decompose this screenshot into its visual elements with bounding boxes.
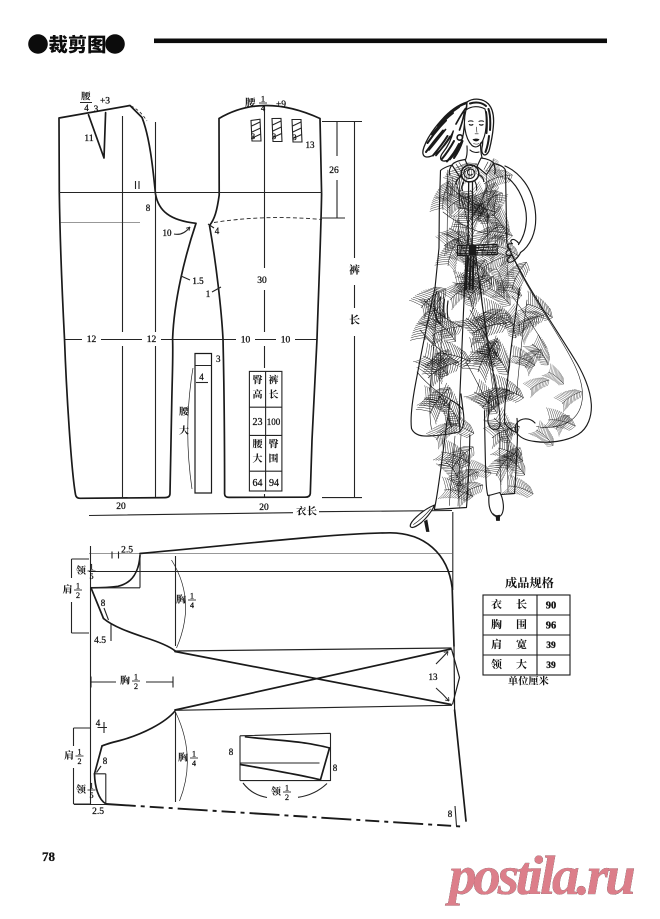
svg-text:10: 10: [241, 336, 251, 346]
svg-text:1: 1: [90, 563, 94, 572]
svg-text:4: 4: [215, 226, 220, 236]
svg-text:2: 2: [134, 682, 138, 691]
svg-text:3: 3: [292, 132, 296, 142]
svg-text:8: 8: [101, 598, 106, 608]
svg-text:11: 11: [84, 134, 93, 144]
svg-text:4: 4: [190, 601, 194, 610]
svg-text:5: 5: [90, 791, 94, 800]
svg-text:1: 1: [206, 289, 211, 299]
svg-text:4: 4: [96, 718, 101, 728]
svg-text:3: 3: [94, 104, 99, 114]
svg-text:2.5: 2.5: [92, 807, 104, 817]
svg-text:12: 12: [87, 335, 97, 345]
svg-text:4: 4: [199, 372, 204, 382]
svg-text:39: 39: [546, 661, 556, 671]
svg-text:8: 8: [448, 809, 453, 819]
svg-text:5: 5: [90, 572, 94, 581]
svg-text:20: 20: [116, 502, 126, 512]
svg-text:3: 3: [251, 131, 255, 141]
svg-text:+9: +9: [276, 100, 286, 110]
svg-text:1: 1: [190, 592, 194, 601]
svg-text:2: 2: [76, 591, 80, 600]
svg-text:78: 78: [42, 849, 56, 864]
svg-text:90: 90: [546, 601, 557, 612]
svg-text:2.5: 2.5: [121, 546, 133, 556]
svg-text:2: 2: [285, 793, 289, 802]
svg-text:13: 13: [306, 140, 316, 150]
svg-text:1: 1: [90, 782, 94, 791]
svg-text:2: 2: [78, 757, 82, 766]
svg-text:1: 1: [192, 750, 196, 759]
svg-text:1: 1: [134, 673, 138, 682]
svg-text:12: 12: [147, 335, 157, 345]
svg-text:26: 26: [329, 166, 339, 176]
svg-text:94: 94: [269, 478, 279, 489]
svg-text:4.5: 4.5: [94, 636, 106, 646]
svg-text:64: 64: [253, 478, 263, 489]
svg-text:10: 10: [163, 228, 173, 238]
svg-text:8: 8: [333, 763, 338, 773]
svg-text:20: 20: [259, 503, 269, 513]
svg-text:13: 13: [429, 672, 439, 682]
svg-text:8: 8: [229, 747, 234, 757]
svg-text:23: 23: [253, 417, 263, 428]
svg-text:8: 8: [146, 203, 151, 213]
svg-text:10: 10: [281, 336, 291, 346]
svg-text:3: 3: [216, 354, 221, 364]
svg-text:1: 1: [76, 582, 80, 591]
svg-text:96: 96: [546, 621, 557, 632]
svg-text:1: 1: [261, 94, 265, 104]
svg-text:3: 3: [272, 131, 276, 141]
svg-text:8: 8: [103, 756, 108, 766]
svg-text:4: 4: [84, 103, 89, 113]
svg-text:4: 4: [192, 759, 196, 768]
svg-text:postila.ru: postila.ru: [445, 845, 634, 906]
svg-text:+3: +3: [100, 97, 110, 107]
svg-text:100: 100: [267, 417, 281, 427]
svg-text:1: 1: [285, 784, 289, 793]
svg-text:39: 39: [546, 641, 556, 651]
svg-text:1.5: 1.5: [192, 276, 204, 286]
svg-text:1: 1: [78, 748, 82, 757]
svg-text:30: 30: [257, 276, 267, 286]
